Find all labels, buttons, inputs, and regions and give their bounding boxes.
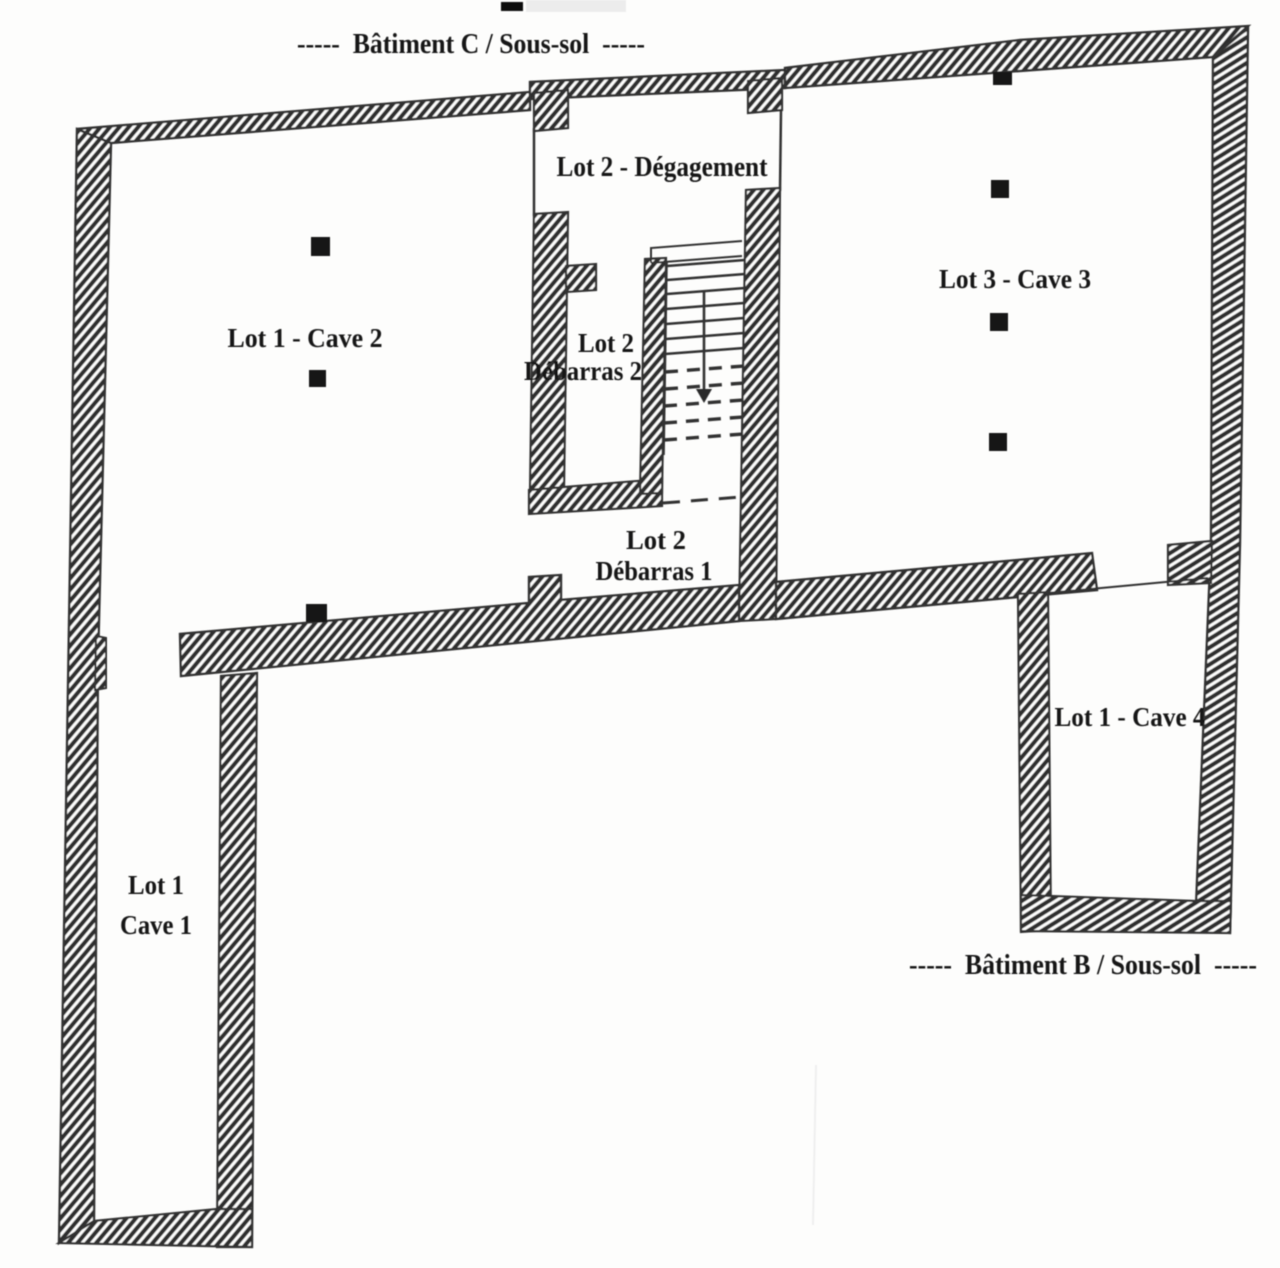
svg-text:Débarras 2: Débarras 2 (524, 356, 642, 386)
svg-text:Lot 2 - Dégagement: Lot 2 - Dégagement (557, 151, 768, 183)
svg-text:Débarras 1: Débarras 1 (596, 556, 713, 586)
svg-text:----- Bâtiment B / Sous-sol: ----- Bâtiment B / Sous-sol ----- (909, 950, 1257, 981)
svg-text:Lot 3 - Cave 3: Lot 3 - Cave 3 (939, 264, 1091, 294)
svg-text:----- Bâtiment C / Sous-sol: ----- Bâtiment C / Sous-sol ----- (297, 29, 645, 60)
svg-text:Lot 1: Lot 1 (128, 870, 184, 900)
svg-text:Lot 1 - Cave 2: Lot 1 - Cave 2 (228, 323, 383, 353)
svg-text:Lot 1 - Cave 4: Lot 1 - Cave 4 (1055, 702, 1206, 732)
svg-text:Lot 2: Lot 2 (626, 525, 686, 555)
svg-text:Cave 1: Cave 1 (120, 910, 192, 940)
svg-text:Lot 2: Lot 2 (578, 328, 634, 358)
